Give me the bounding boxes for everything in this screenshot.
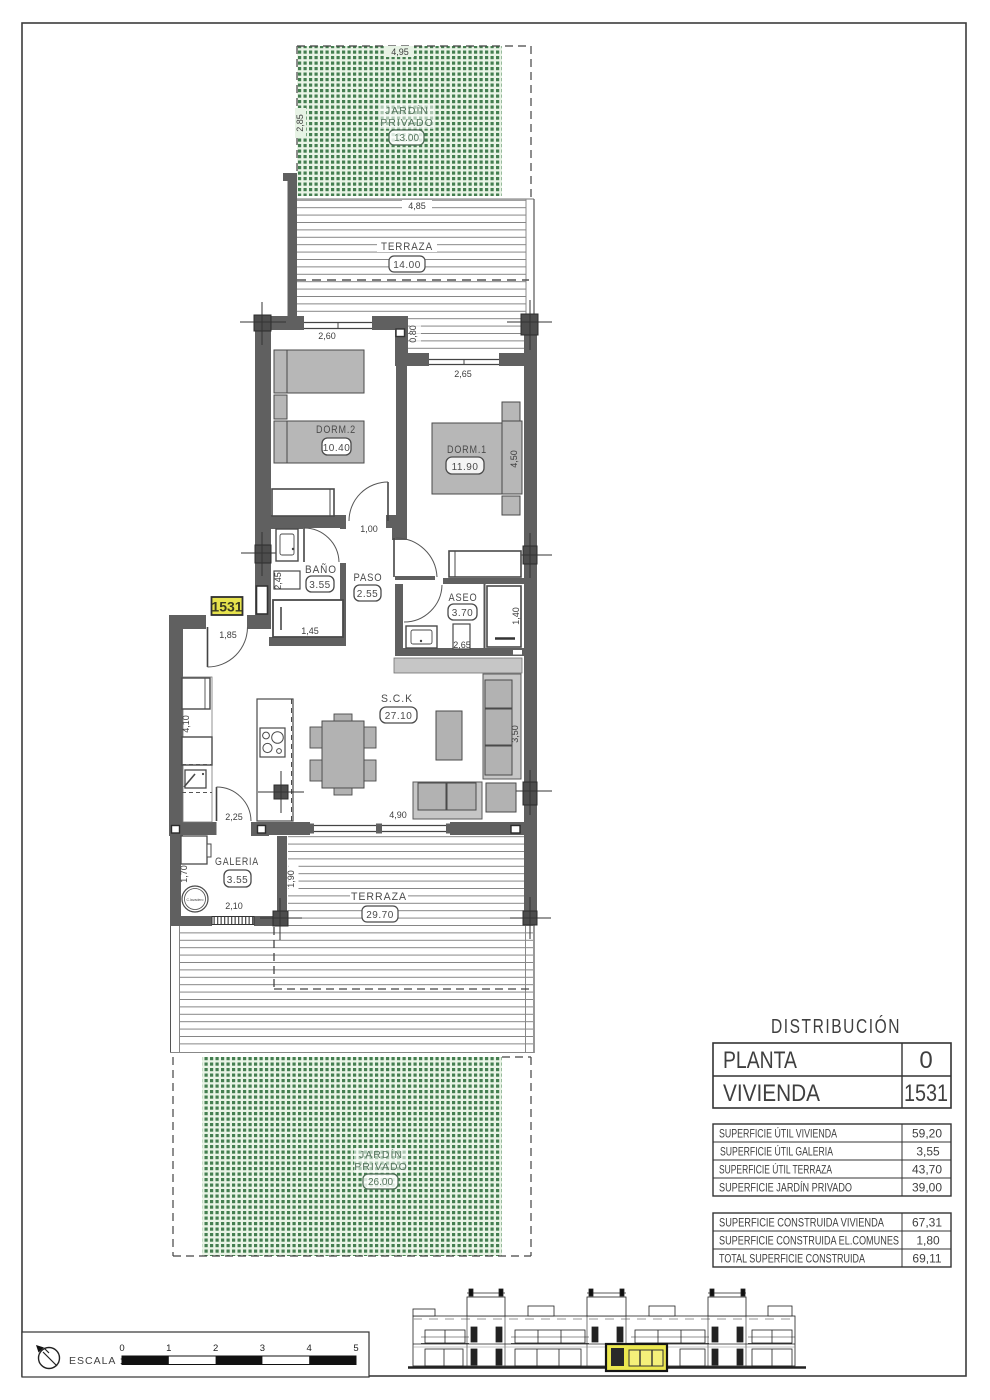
svg-text:3,55: 3,55 [916, 1145, 940, 1159]
svg-text:1,45: 1,45 [301, 626, 319, 636]
svg-text:C.lavadero: C.lavadero [187, 898, 204, 902]
svg-text:27.10: 27.10 [385, 711, 413, 722]
svg-text:0,80: 0,80 [408, 325, 418, 343]
svg-text:ASEO: ASEO [449, 592, 478, 604]
svg-text:14.00: 14.00 [393, 260, 421, 271]
svg-text:2,65: 2,65 [454, 369, 472, 379]
svg-text:SUPERFICIE ÚTIL GALERIA: SUPERFICIE ÚTIL GALERIA [720, 1144, 833, 1159]
svg-text:4,10: 4,10 [181, 715, 191, 733]
svg-text:SUPERFICIE CONSTRUIDA EL.COMUN: SUPERFICIE CONSTRUIDA EL.COMUNES [719, 1234, 899, 1248]
svg-text:4,95: 4,95 [391, 47, 409, 57]
svg-text:3.55: 3.55 [309, 580, 330, 591]
svg-text:10.40: 10.40 [323, 443, 351, 454]
svg-text:JARDÍN: JARDÍN [385, 104, 429, 117]
svg-text:SUPERFICIE CONSTRUIDA VIVIENDA: SUPERFICIE CONSTRUIDA VIVIENDA [719, 1216, 884, 1230]
svg-text:1,85: 1,85 [219, 630, 237, 640]
svg-text:PLANTA: PLANTA [723, 1047, 797, 1074]
svg-text:SUPERFICIE ÚTIL TERRAZA: SUPERFICIE ÚTIL TERRAZA [719, 1162, 832, 1177]
svg-text:13.00: 13.00 [394, 133, 419, 144]
svg-text:2,65: 2,65 [453, 640, 471, 650]
svg-text:2,25: 2,25 [225, 812, 243, 822]
svg-text:29.70: 29.70 [366, 910, 394, 921]
svg-text:3: 3 [260, 1343, 265, 1354]
svg-text:39,00: 39,00 [912, 1181, 942, 1195]
svg-text:S.C.K: S.C.K [381, 693, 413, 705]
svg-text:BAÑO: BAÑO [305, 563, 337, 576]
svg-text:1: 1 [166, 1343, 171, 1354]
svg-text:DISTRIBUCIÓN: DISTRIBUCIÓN [771, 1015, 901, 1038]
svg-text:TERRAZA: TERRAZA [381, 241, 433, 253]
svg-text:69,11: 69,11 [912, 1252, 941, 1266]
svg-text:2: 2 [213, 1343, 218, 1354]
svg-text:1,90: 1,90 [286, 870, 296, 888]
svg-text:ESCALA :: ESCALA : [69, 1355, 124, 1367]
svg-text:1,40: 1,40 [511, 607, 521, 625]
svg-text:0: 0 [919, 1047, 932, 1074]
svg-text:1531: 1531 [904, 1080, 948, 1107]
svg-text:TERRAZA: TERRAZA [351, 891, 407, 903]
svg-text:1,00: 1,00 [360, 524, 378, 534]
svg-text:2,85: 2,85 [295, 114, 305, 132]
svg-text:3.70: 3.70 [452, 608, 473, 619]
svg-text:4,85: 4,85 [408, 201, 426, 211]
svg-text:JARDÍN: JARDÍN [359, 1148, 403, 1161]
svg-text:4,50: 4,50 [509, 450, 519, 468]
svg-text:2,60: 2,60 [318, 331, 336, 341]
svg-text:11.90: 11.90 [452, 462, 479, 473]
svg-text:1531: 1531 [211, 599, 242, 615]
svg-text:VIVIENDA: VIVIENDA [723, 1080, 820, 1107]
svg-text:4,90: 4,90 [389, 810, 407, 820]
svg-text:GALERIA: GALERIA [215, 856, 259, 868]
svg-text:SUPERFICIE ÚTIL VIVIENDA: SUPERFICIE ÚTIL VIVIENDA [719, 1126, 837, 1141]
svg-text:2.55: 2.55 [357, 589, 378, 600]
svg-text:2,45: 2,45 [273, 572, 283, 590]
svg-text:59,20: 59,20 [912, 1127, 942, 1141]
svg-text:DORM.2: DORM.2 [316, 424, 356, 436]
svg-text:1,80: 1,80 [916, 1234, 940, 1248]
svg-text:3.55: 3.55 [227, 875, 248, 886]
svg-text:4: 4 [307, 1343, 312, 1354]
svg-text:43,70: 43,70 [912, 1163, 942, 1177]
svg-text:0: 0 [119, 1343, 124, 1354]
svg-text:PASO: PASO [354, 572, 383, 584]
svg-text:1,70: 1,70 [179, 865, 189, 883]
svg-text:PRIVADO: PRIVADO [354, 1161, 407, 1173]
svg-text:5: 5 [353, 1343, 358, 1354]
svg-text:26.00: 26.00 [368, 1177, 393, 1188]
svg-text:SUPERFICIE JARDÍN PRIVADO: SUPERFICIE JARDÍN PRIVADO [719, 1180, 852, 1195]
svg-text:DORM.1: DORM.1 [447, 444, 487, 456]
svg-text:2,10: 2,10 [225, 901, 243, 911]
svg-text:TOTAL SUPERFICIE CONSTRUIDA: TOTAL SUPERFICIE CONSTRUIDA [719, 1252, 865, 1266]
svg-text:3,50: 3,50 [510, 725, 520, 743]
svg-text:PRIVADO: PRIVADO [380, 117, 433, 129]
svg-text:67,31: 67,31 [912, 1216, 942, 1230]
